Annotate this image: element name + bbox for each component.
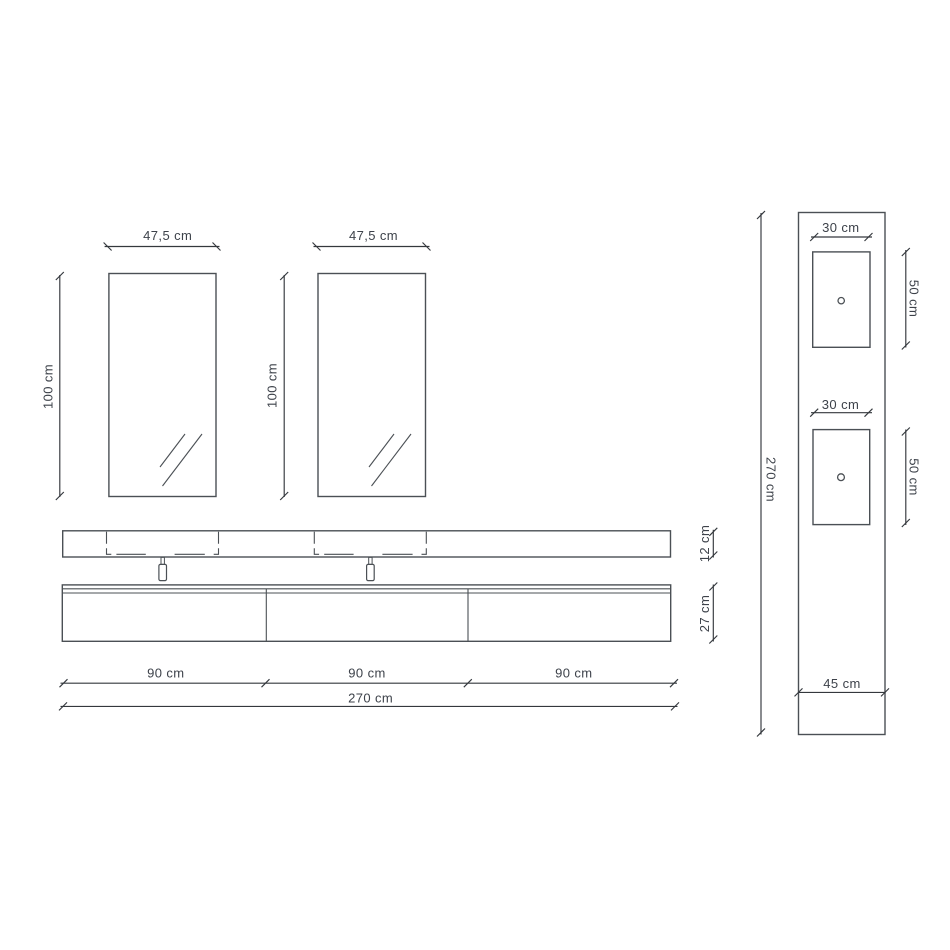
svg-text:45 cm: 45 cm <box>823 676 860 691</box>
svg-text:30 cm: 30 cm <box>822 397 859 412</box>
svg-text:100 cm: 100 cm <box>265 363 280 408</box>
svg-text:90 cm: 90 cm <box>555 666 592 681</box>
svg-text:90 cm: 90 cm <box>348 666 385 681</box>
svg-text:270 cm: 270 cm <box>764 457 779 502</box>
svg-text:50 cm: 50 cm <box>907 458 922 495</box>
svg-text:100 cm: 100 cm <box>41 364 56 409</box>
svg-text:30 cm: 30 cm <box>822 220 859 235</box>
svg-text:270 cm: 270 cm <box>348 690 393 705</box>
svg-text:47,5 cm: 47,5 cm <box>349 228 398 243</box>
svg-text:12 cm: 12 cm <box>697 525 712 562</box>
svg-text:47,5 cm: 47,5 cm <box>143 228 192 243</box>
svg-text:90 cm: 90 cm <box>147 666 184 681</box>
svg-text:50 cm: 50 cm <box>907 280 922 317</box>
svg-text:27 cm: 27 cm <box>697 595 712 632</box>
